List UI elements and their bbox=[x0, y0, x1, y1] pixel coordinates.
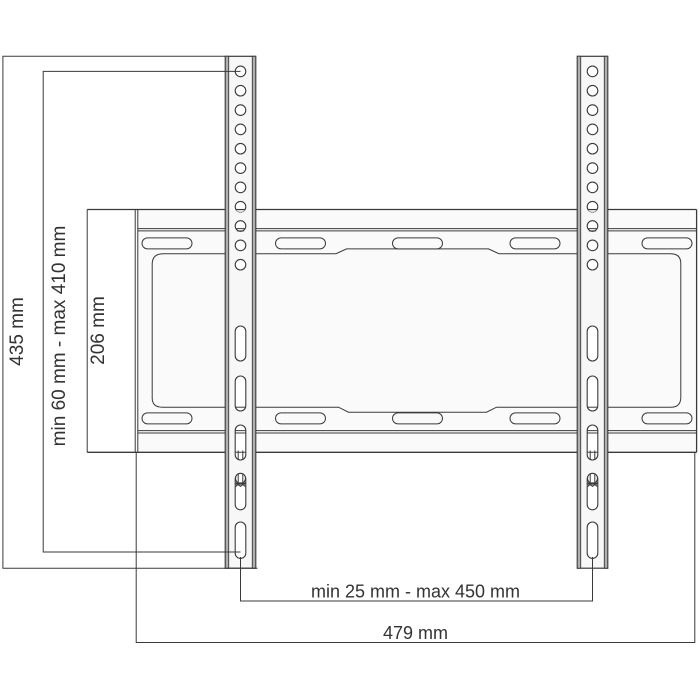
svg-text:435 mm: 435 mm bbox=[7, 297, 28, 366]
svg-text:206 mm: 206 mm bbox=[88, 296, 109, 365]
svg-text:min 25 mm - max 450 mm: min 25 mm - max 450 mm bbox=[311, 582, 520, 602]
svg-text:479 mm: 479 mm bbox=[383, 623, 448, 643]
svg-text:min 60 mm - max 410 mm: min 60 mm - max 410 mm bbox=[49, 226, 70, 447]
